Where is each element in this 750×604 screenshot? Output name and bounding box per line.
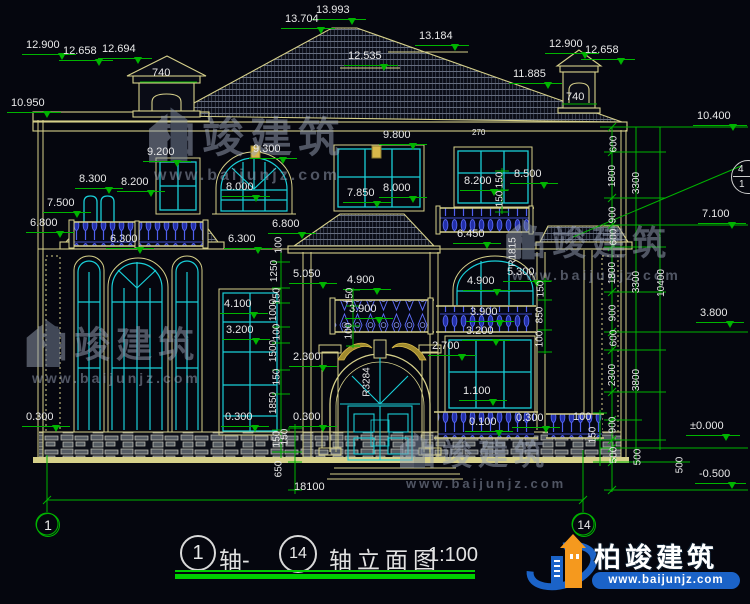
level-label: 9.800 [381,130,413,143]
level-label: 8.000 [224,182,256,195]
level-label: 12.535 [346,51,384,64]
chimney-width-dim: 740 [152,68,170,79]
dim-label: 100 [272,324,282,341]
dim-label: 900 [608,207,618,224]
level-label: 3.200 [464,326,496,339]
level-label: ±0.000 [688,421,726,434]
dim-label: 1250 [270,260,280,282]
level-label: 0.300 [514,413,546,426]
dim-label: 1850 [269,392,279,414]
dim-label: 150 [495,191,505,208]
overall-width-dim: 18100 [294,482,325,493]
level-label: 2.700 [430,341,462,354]
level-label: 0.300 [223,412,255,425]
dim-label: 500 [675,457,685,474]
callout-bottom: 1 [739,179,745,190]
chimney-width-dim: 740 [566,92,584,103]
level-label: 5.300 [505,267,537,280]
title-underline [175,570,475,572]
level-label: 6.800 [270,219,302,232]
level-label: 3.200 [224,325,256,338]
dim-label: 100 [535,331,545,348]
level-label: 3.900 [468,307,500,320]
axis-bubble-1: 1 [36,513,60,537]
level-label: 12.658 [583,45,621,58]
dim-label: 150 [280,429,290,446]
level-label: 4.900 [345,275,377,288]
level-label: 6.300 [108,234,140,247]
dim-label: 1000 [269,299,279,321]
brand-url: www.baijunjz.com [592,572,740,589]
watermark: 柏竣建筑 www.baijunjz.com [398,430,566,491]
dim-label: 3800 [632,369,642,391]
title-axis-1: 1 [180,535,216,571]
dim-label: 900 [608,417,618,434]
watermark-url: www.baijunjz.com [32,370,201,386]
elevation-drawing: 13.993 13.704 12.535 13.184 11.885 12.90… [0,0,750,604]
watermark-url: www.baijunjz.com [406,476,566,491]
level-label: 6.450 [455,229,487,242]
dim-label: 150 [495,172,505,189]
dim-label: 1800 [608,262,618,284]
dim-label: 150 [345,288,355,305]
level-label: 12.900 [547,39,585,52]
dim-label: 600 [609,229,619,246]
level-label: 8.300 [77,174,109,187]
watermark: 柏竣建筑 www.baijunjz.com [24,316,201,386]
level-label: 0.100 [467,417,499,430]
callout-top: 4 [738,164,744,175]
level-label: 0.300 [24,412,56,425]
drawing-scale: 1:100 [428,544,478,567]
dim-label: 600 [609,330,619,347]
level-label: 8.500 [512,169,544,182]
level-label: 12.694 [100,44,138,57]
level-label: 13.184 [417,31,455,44]
level-label: 6.800 [28,218,60,231]
level-label: 4.100 [222,299,254,312]
level-label: 12.900 [24,40,62,53]
dim-label: 1500 [269,340,279,362]
level-label: 3.900 [347,304,379,317]
drawing-linework [0,0,750,604]
level-label: 1.100 [461,386,493,399]
level-label: 13.704 [283,14,321,27]
dim-label: 150 [588,427,598,444]
level-label: 7.500 [45,198,77,211]
dim-label: 500 [609,447,619,464]
level-label: 4.900 [465,276,497,289]
level-label: 2.300 [291,352,323,365]
level-label: 6.300 [226,234,258,247]
dim-label: 3300 [632,271,642,293]
level-label: 0.300 [291,412,323,425]
brand-logo: 柏竣建筑 www.baijunjz.com [532,528,747,598]
level-label: 8.200 [462,176,494,189]
level-label: 5.050 [291,269,323,282]
dim-label: 100 [573,412,591,423]
title-underline [175,574,475,579]
level-label: 10.400 [695,111,733,124]
dim-label: 1800 [608,165,618,187]
dim-label: 150 [536,281,546,298]
title-axis-14: 14 [279,535,317,573]
level-label: 7.850 [345,188,377,201]
level-label: 8.000 [381,183,413,196]
callout-divider [733,176,750,177]
radius-label: R3284 [363,367,373,396]
level-label: 3.800 [698,308,730,321]
level-label: 11.885 [511,69,548,82]
watermark: 柏竣建筑 www.baijunjz.com [146,104,346,185]
level-label: 9.200 [145,147,177,160]
dim-label: 850 [535,307,545,324]
watermark-logo-icon [398,430,428,470]
radius-label: R1815 [509,237,519,266]
dim-label: 3300 [632,172,642,194]
level-label: 7.100 [700,209,732,222]
level-label: 9.300 [251,144,283,157]
dim-label: 10400 [657,269,667,297]
brand-name: 柏竣建筑 [594,536,718,575]
dim-label: 500 [633,449,643,466]
dim-label: 900 [608,305,618,322]
dim-label: 270 [472,129,485,137]
level-label: 8.200 [119,177,151,190]
dim-label: 100 [274,237,284,254]
dim-label: 650 [274,461,284,478]
dim-label: 100 [344,323,354,340]
level-label: -0.500 [697,469,732,482]
dim-label: 2300 [608,364,618,386]
level-label: 12.658 [61,46,99,59]
dim-label: 150 [272,369,282,386]
watermark-logo-icon [24,316,64,370]
dim-label: 600 [609,136,619,153]
level-label: 10.950 [9,98,47,111]
